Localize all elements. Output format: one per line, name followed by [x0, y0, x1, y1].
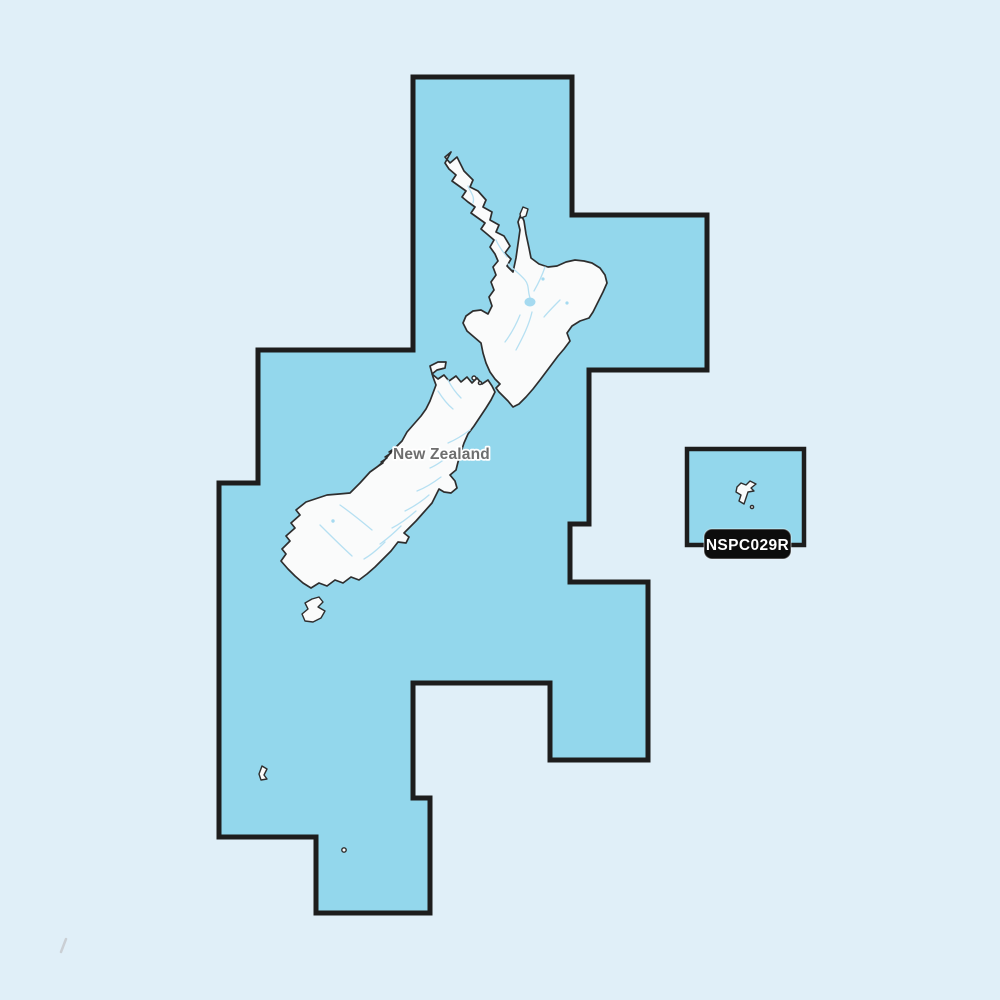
small-lake — [565, 301, 568, 304]
small-lake — [541, 277, 544, 280]
badge-label: NSPC029R — [706, 537, 789, 554]
small-island-dot — [342, 848, 346, 852]
chart-coverage-map: New Zealand NSPC029R — [0, 0, 1000, 1000]
chatham-islet — [750, 505, 753, 508]
lake-taupo — [525, 298, 536, 307]
country-label: New Zealand — [393, 446, 490, 463]
small-lake — [331, 519, 334, 522]
chart-code-badge: NSPC029R — [704, 529, 791, 559]
